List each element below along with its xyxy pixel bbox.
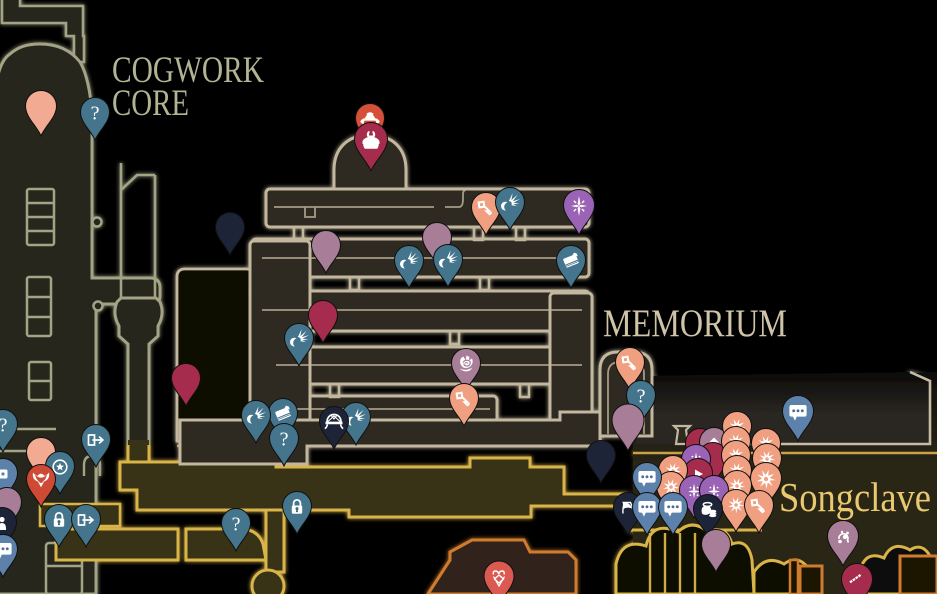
svg-text:MEMORIUM: MEMORIUM [603, 302, 787, 345]
svg-text:Songclave: Songclave [779, 474, 931, 520]
svg-text:?: ? [0, 415, 8, 437]
svg-text:CORE: CORE [112, 83, 189, 124]
svg-text:?: ? [637, 386, 646, 408]
svg-text:?: ? [232, 514, 241, 536]
svg-text:?: ? [91, 103, 100, 125]
svg-text:?: ? [280, 429, 289, 451]
